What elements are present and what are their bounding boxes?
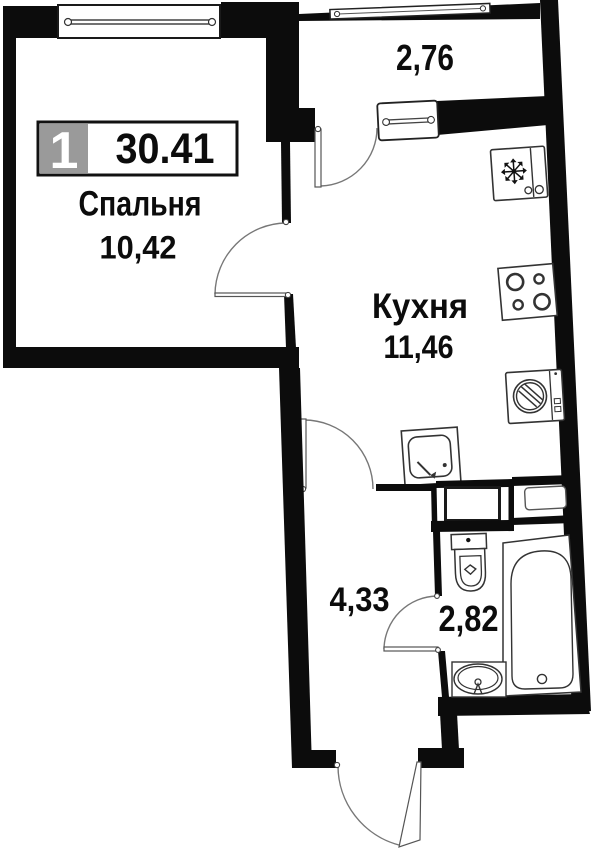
svg-text:30.41: 30.41 <box>116 125 215 173</box>
svg-text:1: 1 <box>50 122 79 180</box>
svg-text:Спальня: Спальня <box>79 185 202 224</box>
svg-text:Кухня: Кухня <box>372 287 468 326</box>
svg-text:2,82: 2,82 <box>439 598 499 639</box>
svg-text:10,42: 10,42 <box>100 230 177 266</box>
svg-text:2,76: 2,76 <box>396 37 454 78</box>
svg-text:11,46: 11,46 <box>384 329 454 365</box>
svg-text:4,33: 4,33 <box>330 581 390 619</box>
